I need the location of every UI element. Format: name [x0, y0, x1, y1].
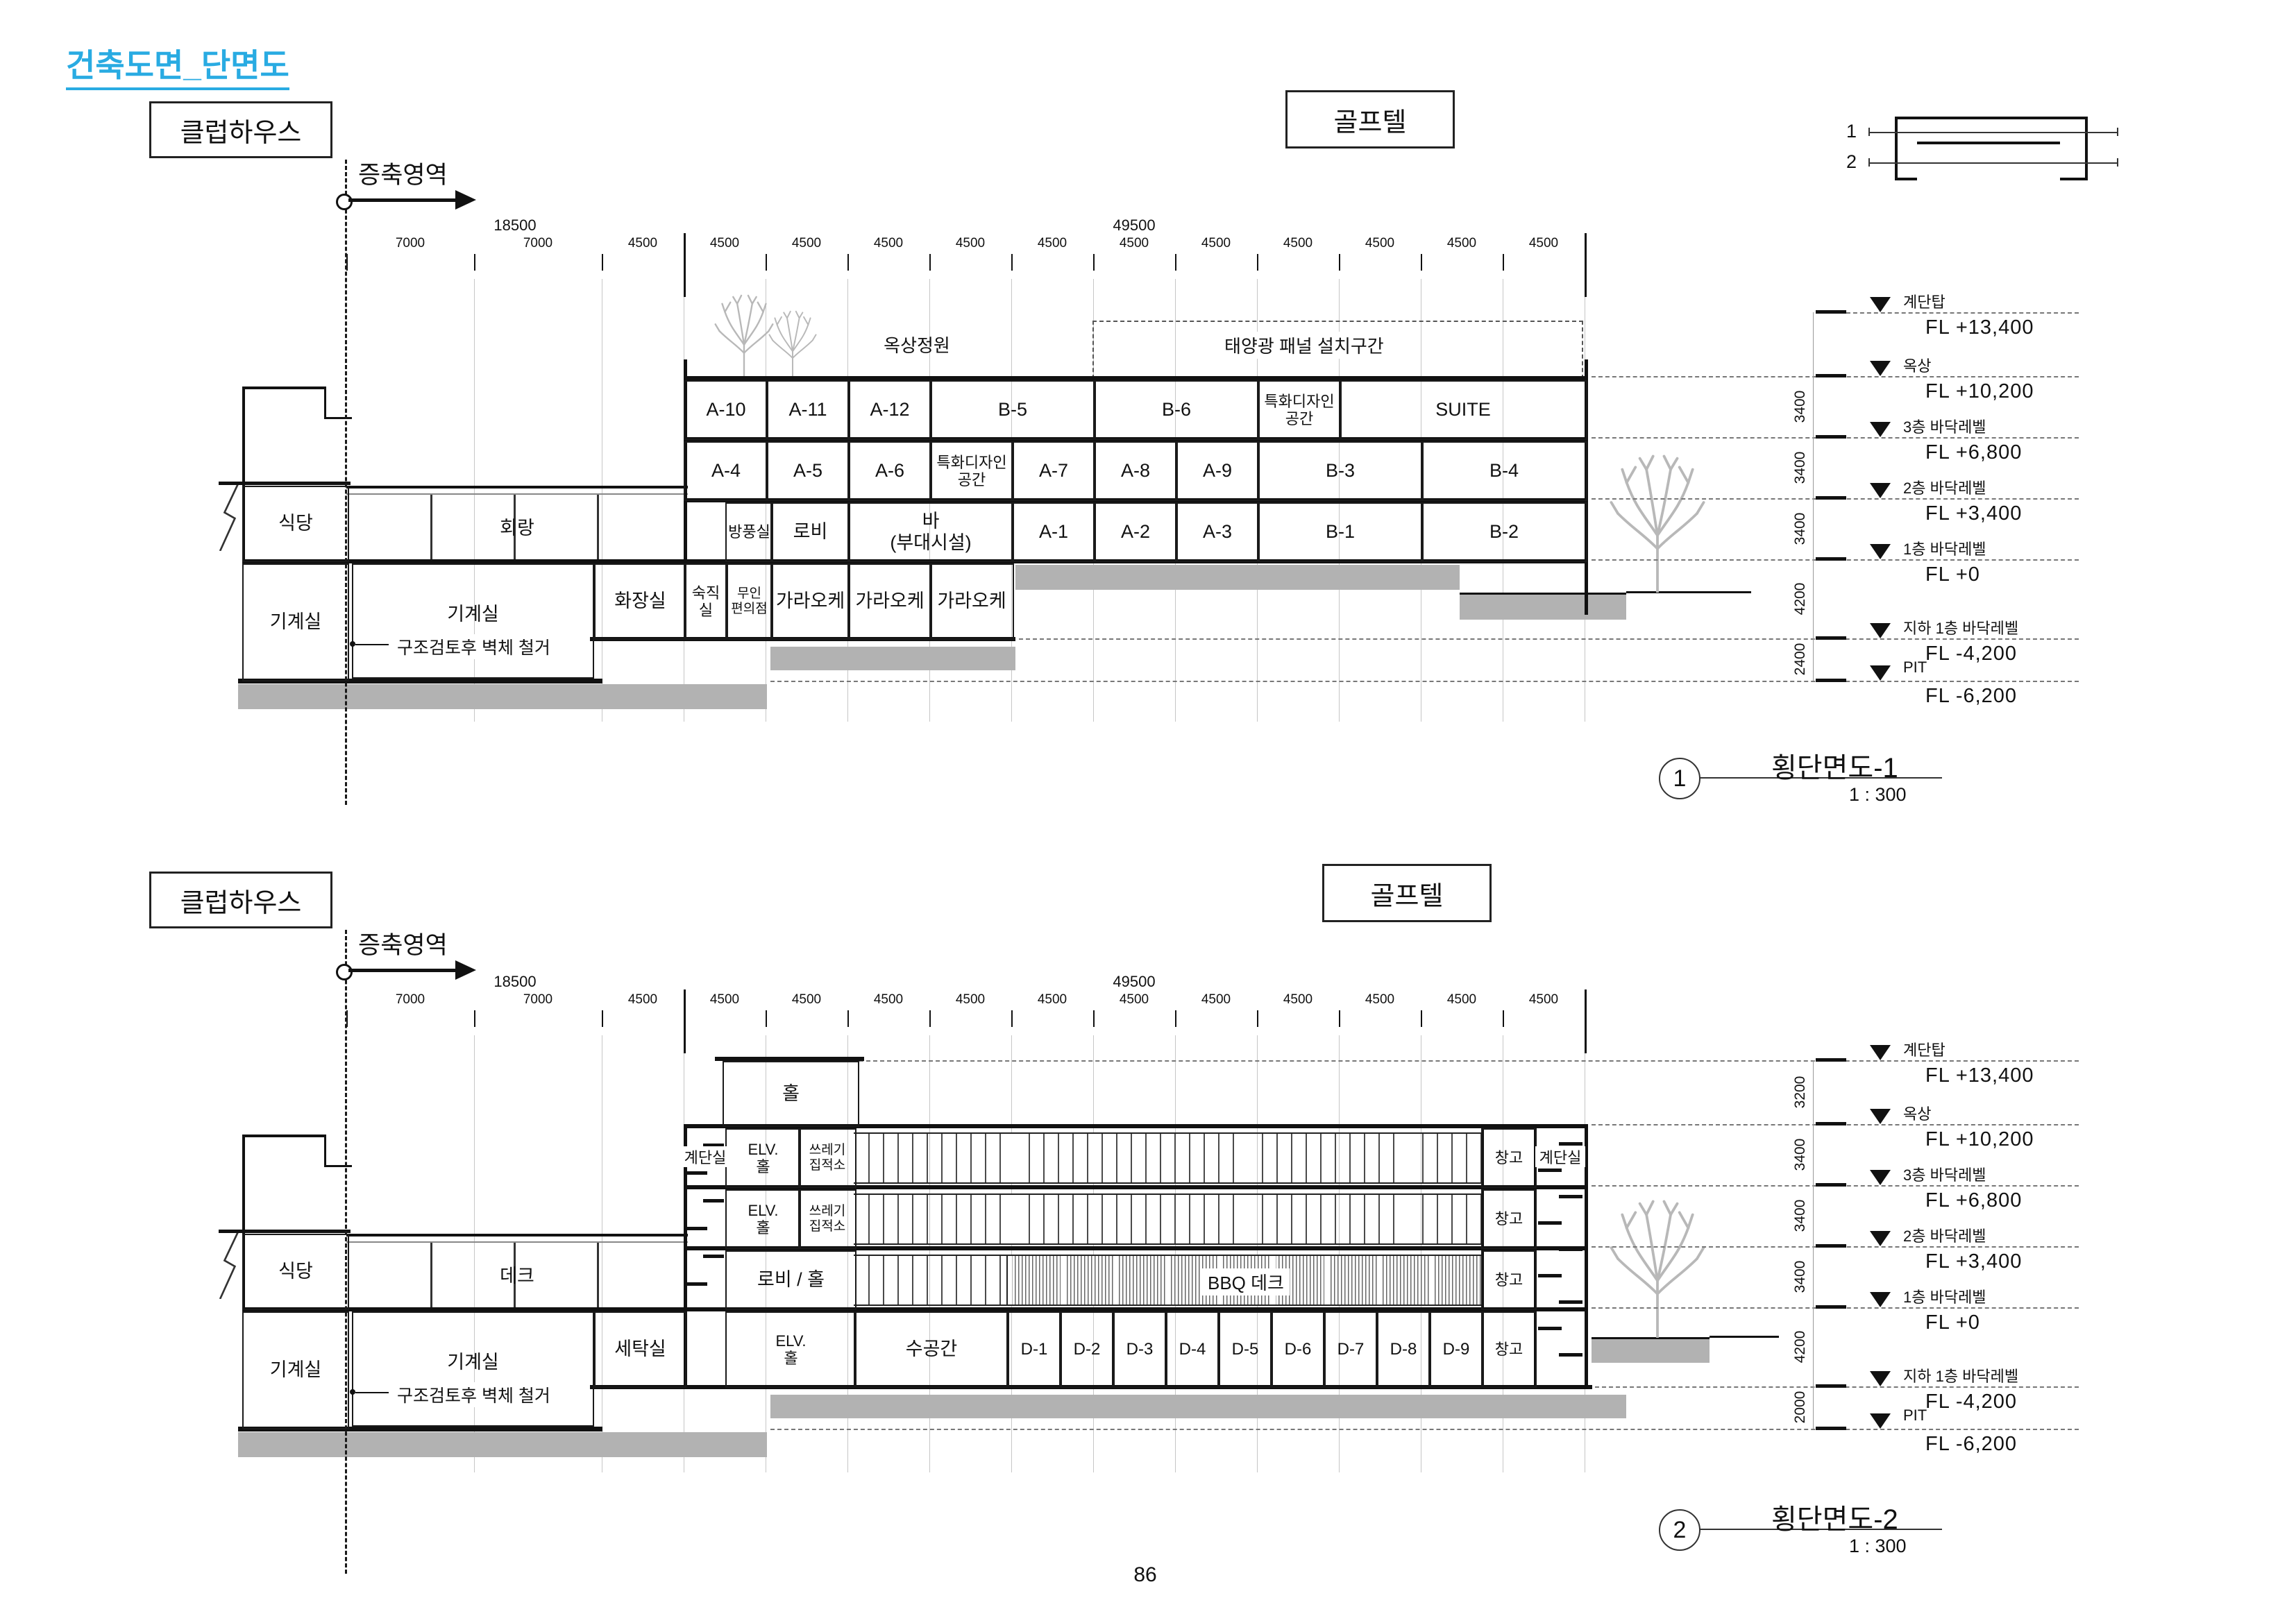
room-karaoke-1: 가라오케: [770, 563, 850, 640]
room-windbreak: 방풍실: [725, 502, 773, 562]
level-line-s1: [770, 681, 2079, 682]
extension-arrow-head-s1: [455, 190, 476, 210]
club-step-wall-s1: [324, 386, 326, 419]
key-plan-cutline-1-tick-r: [2117, 128, 2118, 136]
level-elevation: FL -6,200: [1925, 685, 2017, 708]
room-dining-s2: 식당: [242, 1234, 349, 1310]
demolition-note-s2: 구조검토후 벽체 철거: [394, 1382, 553, 1407]
dimension-tick: [1093, 1010, 1095, 1027]
room-d-unit: D-6: [1270, 1311, 1326, 1388]
level-name: 지하 1층 바닥레벨: [1903, 616, 2018, 638]
level-triangle-icon: [1870, 483, 1891, 498]
room-special-design-3f: 특화디자인 공간: [1257, 380, 1342, 440]
club-roof-slab-s1: [219, 482, 351, 485]
corridor-soffit-s2: [346, 1241, 688, 1243]
dimension-bay-label: 4500: [1024, 236, 1080, 251]
level-elevation: FL +3,400: [1925, 502, 2022, 525]
key-plan-cutline-1: [1868, 132, 2118, 133]
dimension-bay-label: 4500: [697, 236, 752, 251]
level-name: 1층 바닥레벨: [1903, 1285, 1986, 1307]
dimension-bay-label: 4500: [1188, 992, 1244, 1008]
room-lobby-hall: 로비 / 홀: [725, 1250, 856, 1310]
room-a5: A-5: [766, 441, 850, 501]
golftel-label-s2: 골프텔: [1322, 864, 1492, 922]
key-plan-label-2: 2: [1846, 151, 1857, 173]
ground-s2: [1592, 1337, 1710, 1363]
level-line-s1: [1832, 312, 2079, 314]
level-triangle-icon: [1870, 623, 1891, 638]
level-name: 옥상: [1903, 1102, 1931, 1124]
level-name: 계단탑: [1903, 290, 1945, 312]
room-b2: B-2: [1421, 502, 1587, 562]
level-elevation: FL +6,800: [1925, 1189, 2022, 1212]
clubhouse-label-s2: 클럽하우스: [149, 872, 332, 928]
stair-flight: [1538, 1221, 1562, 1225]
room-storage-1f: 창고: [1481, 1250, 1537, 1310]
level-name: 3층 바닥레벨: [1903, 1163, 1986, 1185]
dimension-bay-label: 7000: [510, 992, 566, 1008]
room-a3: A-3: [1175, 502, 1260, 562]
dimension-tick: [602, 254, 603, 271]
level-triangle-icon: [1870, 665, 1891, 681]
room-karaoke-3: 가라오케: [929, 563, 1014, 640]
room-trash-3f: 쓰레기 집적소: [798, 1128, 856, 1188]
room-d-unit: D-7: [1323, 1311, 1378, 1388]
room-a10: A-10: [684, 380, 768, 440]
section-scale-2: 1 : 300: [1849, 1536, 1907, 1557]
dimension-group-tick: [1585, 989, 1587, 1053]
dimension-bay-label: 4500: [861, 236, 916, 251]
level-tick: [1816, 374, 1846, 377]
level-tick: [1816, 1244, 1846, 1248]
room-a7: A-7: [1011, 441, 1096, 501]
stair-flight: [1538, 1327, 1562, 1330]
dimension-tick: [929, 254, 931, 271]
level-triangle-icon: [1870, 1231, 1891, 1246]
room-corridor-s1: 회랑: [479, 513, 555, 538]
level-elevation: FL +13,400: [1925, 1064, 2034, 1087]
room-storage-b1: 창고: [1481, 1311, 1537, 1388]
grid-line: [602, 1035, 602, 1472]
room-trash-2f: 쓰레기 집적소: [798, 1189, 856, 1249]
level-tick: [1816, 1058, 1846, 1062]
level-triangle-icon: [1870, 544, 1891, 559]
extension-circle-s2: [336, 964, 353, 980]
stair-flight: [703, 1199, 724, 1203]
dimension-tick: [1093, 254, 1095, 271]
dimension-tick: [1257, 254, 1258, 271]
dimension-tick: [847, 1010, 849, 1027]
room-b4: B-4: [1421, 441, 1587, 501]
ground-s1: [770, 647, 1015, 670]
key-plan-cutline-1-tick-l: [1868, 128, 1870, 136]
dimension-bay-label: 4500: [615, 992, 670, 1008]
dimension-bay-label: 4500: [1270, 236, 1326, 251]
extension-label-s1: 증축영역: [358, 155, 448, 191]
dimension-bay-label: 4500: [861, 992, 916, 1008]
dim-total-left-s1: 18500: [473, 216, 557, 235]
room-special-design-2f: 특화디자인 공간: [929, 441, 1014, 501]
level-dim-line: [1813, 312, 1814, 681]
ground-s1: [1460, 593, 1626, 620]
level-name: 2층 바닥레벨: [1903, 476, 1986, 498]
level-triangle-icon: [1870, 1413, 1891, 1429]
window-band-1f: [854, 1255, 1006, 1306]
room-a11: A-11: [766, 380, 850, 440]
level-vertical-dimension: 3400: [1792, 433, 1809, 502]
room-a4: A-4: [684, 441, 768, 501]
level-tick: [1816, 1427, 1846, 1430]
solar-panel-label: 태양광 패널 설치구간: [1219, 332, 1390, 359]
dimension-bay-label: 4500: [779, 992, 834, 1008]
level-elevation: FL +10,200: [1925, 380, 2034, 403]
level-tick: [1816, 1305, 1846, 1309]
bbq-deck-label: BBQ 데크: [1202, 1268, 1290, 1295]
level-tick: [1816, 496, 1846, 500]
level-triangle-icon: [1870, 297, 1891, 312]
level-name: 계단탑: [1903, 1038, 1945, 1060]
level-tick: [1816, 679, 1846, 682]
corridor-column-s1: [597, 495, 599, 559]
level-name: 2층 바닥레벨: [1903, 1224, 1986, 1246]
room-hall-bulkhead: 홀: [723, 1061, 859, 1127]
section-title-1: 횡단면도-1: [1771, 745, 1898, 785]
extension-arrow-line-s2: [348, 969, 457, 972]
level-elevation: FL +13,400: [1925, 316, 2034, 339]
demolition-dot-s1: [350, 641, 355, 647]
grade-line-s2: [1710, 1336, 1779, 1338]
room-a8: A-8: [1093, 441, 1178, 501]
demolition-leader-s2: [355, 1392, 389, 1393]
room-d-unit: D-9: [1428, 1311, 1484, 1388]
room-stairwell-left: 계단실: [681, 1146, 729, 1167]
dimension-bay-label: 7000: [382, 992, 438, 1008]
extension-dashed-line-s2: [345, 930, 347, 1574]
dimension-tick: [766, 1010, 767, 1027]
dimension-bay-label: 4500: [1434, 992, 1489, 1008]
dimension-tick: [1175, 1010, 1176, 1027]
extension-circle-s1: [336, 194, 353, 210]
dimension-tick: [1421, 254, 1422, 271]
page-number: 86: [1090, 1563, 1201, 1588]
room-b3: B-3: [1257, 441, 1424, 501]
level-triangle-icon: [1870, 361, 1891, 376]
stair-flight: [686, 1227, 707, 1230]
room-a6: A-6: [847, 441, 932, 501]
level-vertical-dimension: 3400: [1792, 494, 1809, 563]
level-name: 옥상: [1903, 354, 1931, 376]
room-a2: A-2: [1093, 502, 1178, 562]
dimension-bay-label: 4500: [1434, 236, 1489, 251]
section-bubble-2: 2: [1659, 1509, 1700, 1551]
level-name: PIT: [1903, 658, 1927, 677]
room-a9: A-9: [1175, 441, 1260, 501]
dimension-bay-label: 4500: [1024, 992, 1080, 1008]
room-dining-s1: 식당: [242, 486, 349, 562]
room-machine-large-s2: 기계실: [352, 1311, 594, 1427]
stair-flight: [686, 1282, 707, 1286]
key-plan-cutline-2-tick-l: [1868, 158, 1870, 167]
dimension-tick: [1421, 1010, 1422, 1027]
dimension-bay-label: 4500: [1188, 236, 1244, 251]
level-line-s2: [859, 1060, 2079, 1062]
room-water-space: 수공간: [854, 1311, 1009, 1388]
corridor-slab-s2: [346, 1234, 688, 1237]
level-tick: [1816, 1122, 1846, 1125]
corridor-slab-s1: [346, 486, 688, 488]
dimension-tick: [1011, 254, 1013, 271]
level-name: 3층 바닥레벨: [1903, 415, 1986, 437]
page-title: 건축도면_단면도: [66, 40, 289, 90]
demolition-dot-s2: [350, 1389, 355, 1395]
dimension-bay-label: 4500: [615, 236, 670, 251]
dimension-bay-label: 4500: [1270, 992, 1326, 1008]
dimension-tick: [1503, 1010, 1504, 1027]
room-d-unit: D-8: [1376, 1311, 1431, 1388]
ground-s1: [1015, 565, 1460, 590]
level-triangle-icon: [1870, 1109, 1891, 1124]
corridor-column-s2: [597, 1243, 599, 1307]
dimension-tick: [1257, 1010, 1258, 1027]
dimension-bay-label: 4500: [779, 236, 834, 251]
level-triangle-icon: [1870, 1371, 1891, 1386]
room-elv-hall-b1: ELV. 홀: [725, 1311, 856, 1388]
level-vertical-dimension: 3400: [1792, 372, 1809, 441]
tree-icon: [1598, 450, 1717, 593]
extension-arrow-line-s1: [348, 198, 457, 202]
section-title-2: 횡단면도-2: [1771, 1497, 1898, 1537]
level-tick: [1816, 557, 1846, 561]
level-triangle-icon: [1870, 422, 1891, 437]
room-a12: A-12: [847, 380, 932, 440]
ground-s2: [238, 1432, 767, 1457]
corridor-column-s2: [430, 1243, 432, 1307]
dimension-bay-label: 7000: [510, 236, 566, 251]
level-elevation: FL -6,200: [1925, 1433, 2017, 1456]
dimension-group-tick: [684, 233, 686, 297]
club-ledge-s1: [242, 386, 326, 389]
tree-icon: [1598, 1195, 1717, 1338]
level-vertical-dimension: 3400: [1792, 1120, 1809, 1189]
room-b5: B-5: [929, 380, 1096, 440]
room-machine-small-s1: 기계실: [242, 563, 349, 681]
dimension-tick: [1175, 254, 1176, 271]
room-karaoke-2: 가라오케: [847, 563, 932, 640]
level-elevation: FL +0: [1925, 563, 1980, 586]
stair-flight: [686, 1171, 707, 1175]
dimension-tick: [474, 254, 475, 271]
level-tick: [1816, 1183, 1846, 1187]
level-triangle-icon: [1870, 1292, 1891, 1307]
level-vertical-dimension: 3200: [1792, 1057, 1809, 1127]
demolition-note-s1: 구조검토후 벽체 철거: [394, 634, 553, 659]
dim-total-left-s2: 18500: [473, 973, 557, 991]
dimension-bay-label: 4500: [1516, 992, 1571, 1008]
key-plan-inner: [1917, 142, 2060, 180]
level-dim-line: [1813, 1060, 1814, 1429]
level-elevation: FL +10,200: [1925, 1128, 2034, 1151]
room-d-unit: D-4: [1165, 1311, 1220, 1388]
window-band-2f: [854, 1193, 1481, 1245]
tree-icon: [761, 308, 825, 380]
dimension-group-tick: [684, 989, 686, 1053]
level-vertical-dimension: 2000: [1792, 1373, 1809, 1442]
room-night-duty: 숙직실: [684, 563, 728, 640]
level-vertical-dimension: 3400: [1792, 1242, 1809, 1311]
club-ledge-s2: [242, 1135, 326, 1137]
dimension-tick: [1011, 1010, 1013, 1027]
stair-flight: [1538, 1274, 1562, 1277]
demolition-leader-s1: [355, 644, 389, 645]
room-elv-hall-3f: ELV. 홀: [725, 1128, 801, 1188]
level-elevation: FL -4,200: [1925, 1391, 2017, 1413]
level-vertical-dimension: 4200: [1792, 1312, 1809, 1382]
level-name: 1층 바닥레벨: [1903, 537, 1986, 559]
dimension-tick: [929, 1010, 931, 1027]
key-plan-cutline-2: [1868, 162, 2118, 164]
room-b1: B-1: [1257, 502, 1424, 562]
room-restroom: 화장실: [594, 563, 686, 640]
dimension-tick: [602, 1010, 603, 1027]
room-d-unit: D-1: [1006, 1311, 1062, 1388]
dimension-bay-label: 7000: [382, 236, 438, 251]
dimension-bay-label: 4500: [1516, 236, 1571, 251]
room-suite: SUITE: [1339, 380, 1587, 440]
key-plan-cutline-2-tick-r: [2117, 158, 2118, 167]
extension-label-s2: 증축영역: [358, 926, 448, 961]
dimension-tick: [1503, 254, 1504, 271]
club-ledge2-s1: [324, 417, 352, 419]
level-vertical-dimension: 3400: [1792, 1181, 1809, 1250]
club-ledge2-s2: [324, 1165, 352, 1167]
level-elevation: FL +3,400: [1925, 1250, 2022, 1273]
room-bar: 바 (부대시설): [847, 502, 1014, 562]
dimension-bay-label: 4500: [1352, 236, 1408, 251]
level-tick: [1816, 1384, 1846, 1388]
room-machine-large-s1: 기계실: [352, 563, 594, 679]
room-unmanned-store: 무인 편의점: [725, 563, 773, 640]
stair-flight: [1559, 1195, 1582, 1198]
room-elv-hall-2f: ELV. 홀: [725, 1189, 801, 1249]
section-bubble-1: 1: [1659, 758, 1700, 799]
key-plan-label-1: 1: [1846, 121, 1857, 142]
dimension-tick: [474, 1010, 475, 1027]
extension-dashed-line-s1: [345, 160, 347, 805]
dimension-tick: [847, 254, 849, 271]
roof-garden-label: 옥상정원: [872, 332, 962, 357]
golftel-label-s1: 골프텔: [1285, 90, 1455, 148]
stair-flight: [703, 1255, 724, 1258]
level-elevation: FL -4,200: [1925, 643, 2017, 665]
level-line-s1: [1019, 638, 2079, 640]
level-tick: [1816, 636, 1846, 640]
room-laundry: 세탁실: [594, 1311, 686, 1388]
dimension-bay-label: 4500: [943, 236, 998, 251]
room-storage-2f: 창고: [1481, 1189, 1537, 1249]
stair-flight: [1559, 1300, 1582, 1304]
dimension-bay-label: 4500: [943, 992, 998, 1008]
dimension-bay-label: 4500: [1352, 992, 1408, 1008]
level-vertical-dimension: 4200: [1792, 564, 1809, 634]
room-a1: A-1: [1011, 502, 1096, 562]
dimension-bay-label: 4500: [697, 992, 752, 1008]
window-band-3f: [854, 1132, 1481, 1184]
stair-flight: [1538, 1169, 1562, 1172]
level-line-s2: [770, 1429, 2079, 1430]
club-step-wall-s2: [324, 1135, 326, 1167]
dimension-tick: [1339, 254, 1340, 271]
level-tick: [1816, 435, 1846, 439]
ground-s2: [770, 1395, 1626, 1418]
level-vertical-dimension: 2400: [1792, 624, 1809, 694]
ground-s1: [238, 684, 767, 709]
dimension-tick: [766, 254, 767, 271]
room-lobby-s1: 로비: [770, 502, 850, 562]
level-elevation: FL +6,800: [1925, 441, 2022, 464]
room-storage-3f: 창고: [1481, 1128, 1537, 1188]
grid-line: [602, 279, 602, 722]
dimension-tick: [1339, 1010, 1340, 1027]
room-deck-s2: 데크: [479, 1261, 555, 1286]
corridor-soffit-s1: [346, 493, 688, 495]
dimension-bay-label: 4500: [1106, 236, 1162, 251]
level-name: PIT: [1903, 1407, 1927, 1425]
room-machine-small-s2: 기계실: [242, 1311, 349, 1429]
room-d-unit: D-2: [1059, 1311, 1115, 1388]
dimension-bay-label: 4500: [1106, 992, 1162, 1008]
level-triangle-icon: [1870, 1170, 1891, 1185]
extension-arrow-head-s2: [455, 960, 476, 980]
drawing-sheet: 건축도면_단면도 1 2 클럽하우스 골프텔 증축영역 18500 49500 …: [0, 0, 2296, 1623]
dim-total-right-s2: 49500: [1092, 973, 1176, 991]
level-triangle-icon: [1870, 1045, 1891, 1060]
room-stairwell-right: 계단실: [1535, 1146, 1585, 1167]
dimension-group-tick: [1585, 233, 1587, 297]
room-d-unit: D-5: [1217, 1311, 1273, 1388]
room-b6: B-6: [1093, 380, 1260, 440]
corridor-column-s1: [430, 495, 432, 559]
level-tick: [1816, 310, 1846, 314]
stair-flight: [1559, 1248, 1582, 1251]
clubhouse-label-s1: 클럽하우스: [149, 101, 332, 158]
club-roof-slab-s2: [219, 1230, 351, 1233]
stair-flight: [1559, 1353, 1582, 1357]
section-scale-1: 1 : 300: [1849, 784, 1907, 806]
level-elevation: FL +0: [1925, 1311, 1980, 1334]
dim-total-right-s1: 49500: [1092, 216, 1176, 235]
level-name: 지하 1층 바닥레벨: [1903, 1364, 2018, 1386]
room-d-unit: D-3: [1112, 1311, 1167, 1388]
